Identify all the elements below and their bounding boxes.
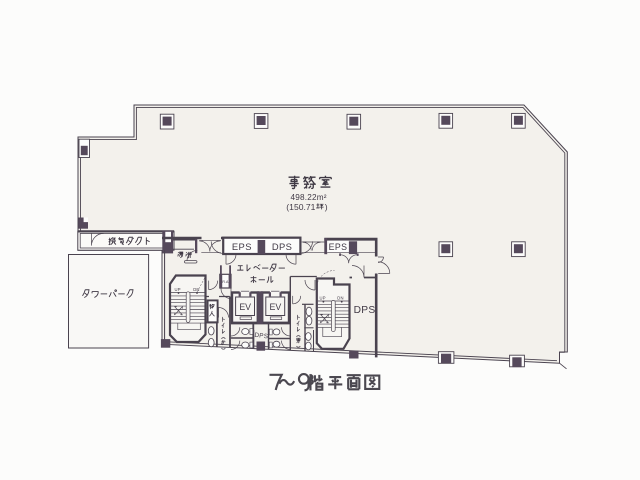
svg-text:DN: DN <box>337 296 343 301</box>
svg-text:EV: EV <box>239 302 251 312</box>
svg-text:EV: EV <box>270 302 282 312</box>
svg-text:EPS: EPS <box>329 242 348 252</box>
svg-text:DPS: DPS <box>272 241 292 252</box>
svg-text:): ) <box>325 202 328 212</box>
svg-text:498.22m²: 498.22m² <box>291 193 327 202</box>
svg-text:(150.71: (150.71 <box>286 202 315 212</box>
svg-text:EPS: EPS <box>232 241 252 252</box>
svg-text:DPS: DPS <box>354 305 376 316</box>
svg-text:UP: UP <box>320 296 326 301</box>
svg-text:DN: DN <box>193 287 199 292</box>
svg-text:R.A: R.A <box>222 280 229 284</box>
svg-text:UP: UP <box>175 287 181 292</box>
